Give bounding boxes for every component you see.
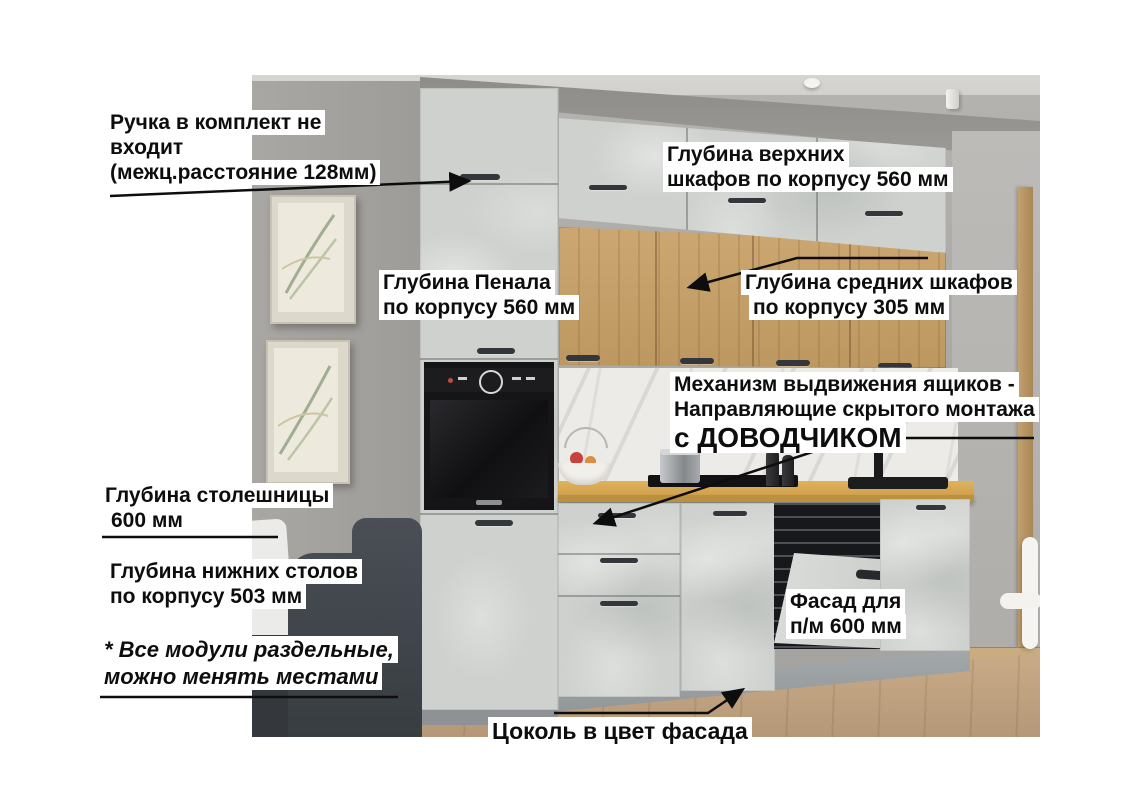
oven-display xyxy=(458,377,467,380)
annotation-line: 600 мм xyxy=(107,508,187,533)
oven-control-panel xyxy=(424,368,554,392)
annotation-line: Направляющие скрытого монтажа xyxy=(670,397,1039,422)
annotation-tall-cabinet-depth: Глубина Пенала по корпусу 560 мм xyxy=(379,270,579,320)
cabinet-handle xyxy=(680,358,714,364)
annotation-drawer-mechanism: Механизм выдвижения ящиков - Направляющи… xyxy=(670,372,1039,453)
built-in-oven xyxy=(424,362,554,510)
annotation-line: (межц.расстояние 128мм) xyxy=(106,160,380,185)
annotation-plinth-note: Цоколь в цвет фасада xyxy=(488,717,752,745)
ceiling-spotlight xyxy=(946,89,959,109)
cabinet-handle xyxy=(589,185,627,190)
annotation-line: п/м 600 мм xyxy=(786,614,906,639)
annotation-line: по корпусу 560 мм xyxy=(379,295,579,320)
oven-logo xyxy=(476,500,502,505)
drawer-seam xyxy=(558,595,680,597)
annotation-line: можно менять местами xyxy=(100,663,382,690)
product-diagram: Ручка в комплект не входит (межц.расстоя… xyxy=(0,0,1123,794)
annotation-dishwasher-facade: Фасад для п/м 600 мм xyxy=(786,589,906,639)
annotation-emphasis: с ДОВОДЧИКОМ xyxy=(670,422,906,453)
annotation-countertop-depth: Глубина столешницы 600 мм xyxy=(101,483,333,533)
door-seam xyxy=(420,183,558,185)
cooking-pot xyxy=(660,449,700,483)
cabinet-handle xyxy=(865,211,903,216)
drawer-seam xyxy=(558,553,680,555)
door-seam xyxy=(655,227,657,368)
spice-grinder xyxy=(782,455,794,486)
annotation-line: Глубина верхних xyxy=(663,142,849,167)
annotation-line: по корпусу 305 мм xyxy=(749,295,949,320)
annotation-base-cabinets-depth: Глубина нижних столов по корпусу 503 мм xyxy=(106,559,362,609)
oven-display xyxy=(512,377,521,380)
ceiling-spotlight xyxy=(804,78,820,88)
annotation-line: Глубина нижних столов xyxy=(106,559,362,584)
oven-display xyxy=(526,377,535,380)
annotation-line: Глубина Пенала xyxy=(379,270,555,295)
chair-seat xyxy=(1000,593,1040,609)
sink xyxy=(848,477,948,489)
cabinet-handle xyxy=(916,505,946,510)
spice-grinder xyxy=(766,450,779,486)
cabinet-handle xyxy=(477,348,515,354)
drawer-handle xyxy=(600,558,638,563)
drawer-handle xyxy=(598,513,636,518)
annotation-upper-cabinets-depth: Глубина верхних шкафов по корпусу 560 мм xyxy=(663,142,953,192)
annotation-line: * Все модули раздельные, xyxy=(100,636,398,663)
drawer-handle xyxy=(600,601,638,606)
cabinet-handle xyxy=(475,520,513,526)
cabinet-handle xyxy=(713,511,747,516)
door-seam xyxy=(420,358,558,360)
palm-print xyxy=(272,197,350,318)
annotation-line: Ручка в комплект не xyxy=(106,110,325,135)
annotation-line: Фасад для xyxy=(786,589,905,614)
cabinet-handle xyxy=(460,174,500,180)
palm-print xyxy=(268,342,344,478)
annotation-line: Глубина средних шкафов xyxy=(741,270,1017,295)
cabinet-handle xyxy=(728,198,766,203)
annotation-line: Цоколь в цвет фасада xyxy=(488,717,752,745)
picture-frame xyxy=(270,195,356,324)
annotation-line: по корпусу 503 мм xyxy=(106,584,306,609)
annotation-middle-cabinets-depth: Глубина средних шкафов по корпусу 305 мм xyxy=(741,270,1017,320)
oven-door-glass xyxy=(430,400,548,498)
annotation-modules-note: * Все модули раздельные, можно менять ме… xyxy=(100,636,398,690)
cabinet-handle xyxy=(776,360,810,366)
oven-indicator xyxy=(448,378,453,383)
cabinet-handle xyxy=(566,355,600,361)
annotation-line: Механизм выдвижения ящиков - xyxy=(670,372,1019,397)
annotation-line: входит xyxy=(106,135,187,160)
annotation-handle-note: Ручка в комплект не входит (межц.расстоя… xyxy=(106,110,380,185)
oven-dial xyxy=(479,370,503,394)
annotation-line: Глубина столешницы xyxy=(101,483,333,508)
base-cabinet-door xyxy=(680,503,775,691)
tall-cabinet xyxy=(420,88,559,710)
door-seam xyxy=(420,513,558,515)
picture-frame xyxy=(266,340,350,484)
annotation-line: шкафов по корпусу 560 мм xyxy=(663,167,953,192)
drawer-unit xyxy=(558,503,680,697)
